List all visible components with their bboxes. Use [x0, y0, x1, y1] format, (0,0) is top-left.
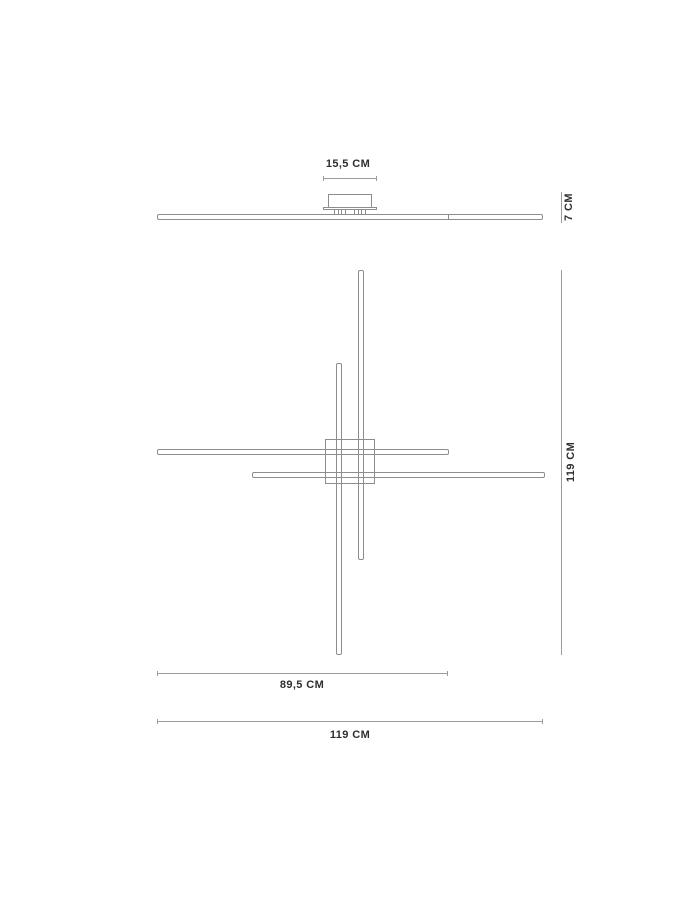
- bar-length-label: 89,5 CM: [262, 678, 342, 692]
- dimension-diagram: 15,5 CM 7 CM 119 CM: [0, 0, 700, 900]
- vertical-bar-upper: [358, 270, 364, 560]
- overall-height-dim-line: [561, 270, 562, 655]
- dim-tick: [542, 719, 543, 724]
- overall-width-label: 119 CM: [310, 728, 390, 742]
- horizontal-bar-upper: [157, 449, 449, 455]
- dim-tick: [157, 671, 158, 676]
- overall-height-label: 119 CM: [564, 432, 578, 492]
- horizontal-bar-lower: [252, 472, 545, 478]
- dim-tick: [447, 671, 448, 676]
- dim-tick: [157, 719, 158, 724]
- bar-length-dim-line: [157, 673, 448, 674]
- vertical-bar-lower: [336, 363, 342, 655]
- top-view: 119 CM 89,5 CM 119 CM: [0, 0, 700, 900]
- overall-width-dim-line: [157, 721, 543, 722]
